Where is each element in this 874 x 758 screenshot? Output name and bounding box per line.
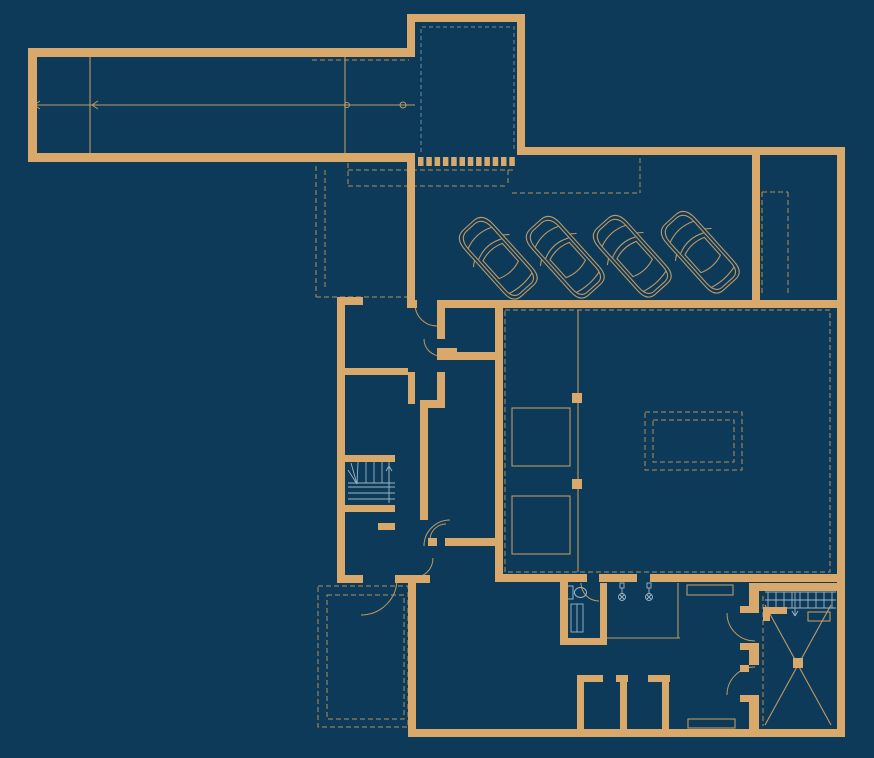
wall-segment [28, 48, 37, 162]
bathroom-cabinet [571, 604, 583, 632]
shower-head-fixture [646, 583, 653, 601]
threshold-grille-slat [460, 157, 466, 166]
wall-segment [740, 695, 749, 702]
parked-cars [451, 203, 748, 307]
wall-segment [437, 372, 445, 403]
wall-segment [337, 575, 363, 583]
threshold-grille-slat [451, 157, 457, 166]
threshold-grille-slat [493, 157, 499, 166]
entry-canopy-dashed-outline [421, 27, 514, 152]
wall-segment [650, 574, 845, 582]
wall-segment [437, 352, 497, 360]
walls [28, 14, 845, 737]
parked-car [653, 203, 748, 301]
wall-segment [749, 695, 759, 737]
threshold-grille-slat [501, 157, 507, 166]
floor-plan-svg [0, 0, 874, 758]
wall-segment [36, 48, 411, 57]
wall-segment [600, 583, 607, 644]
wall-segment [577, 675, 603, 682]
wall-segment [620, 675, 627, 730]
wall-segment [517, 14, 525, 155]
wall-segment [572, 479, 582, 489]
wall-segment [437, 303, 445, 339]
wall-segment [495, 574, 587, 582]
parked-car [451, 209, 546, 307]
wall-segment [560, 575, 568, 645]
wall-segment [407, 14, 525, 22]
wall-segment [662, 675, 669, 730]
wall-segment [408, 580, 416, 737]
door-swing-arc [581, 583, 599, 601]
wall-segment [599, 574, 637, 582]
wall-segment [408, 372, 415, 404]
wall-segment [408, 729, 845, 737]
wall-segment [837, 147, 845, 737]
wall-segment [517, 147, 845, 155]
wall-segment [763, 607, 770, 621]
wall-segment [740, 606, 749, 613]
wall-segment [740, 643, 749, 650]
wall-segment [345, 505, 395, 512]
wall-segment [428, 538, 437, 546]
wall-segment [407, 300, 417, 308]
wall-segment [793, 658, 803, 668]
wall-segment [420, 408, 428, 520]
threshold-grille-slat [509, 157, 515, 166]
parked-car [518, 208, 613, 306]
wall-segment [407, 162, 415, 308]
parked-car [585, 207, 680, 305]
threshold-grille-slat [484, 157, 490, 166]
wall-segment [560, 638, 607, 645]
wall-segment [749, 643, 759, 665]
wall-segment [337, 297, 345, 583]
threshold-grille-slat [468, 157, 474, 166]
threshold-grille-slat [426, 157, 432, 166]
wall-segment [577, 675, 584, 730]
wall-segment [378, 523, 395, 530]
threshold-grille-slat [435, 157, 441, 166]
floor-plan-canvas [0, 0, 874, 758]
wall-segment [572, 393, 582, 403]
shower-head-fixture [619, 583, 626, 601]
winder-staircase [348, 462, 395, 503]
threshold-grille-slat [418, 157, 424, 166]
wall-segment [341, 368, 408, 375]
wall-segment [740, 665, 749, 672]
wall-segment [420, 400, 445, 408]
door-swing-arc [415, 304, 437, 326]
door-swing-arc [361, 579, 397, 615]
threshold-grille-slat [476, 157, 482, 166]
threshold-grille-slat [443, 157, 449, 166]
wall-segment [445, 538, 497, 546]
wall-segment [752, 155, 760, 303]
wall-segment [749, 583, 845, 591]
door-swing-arc [727, 613, 755, 641]
wall-segment [28, 153, 415, 162]
wall-segment [345, 455, 395, 462]
